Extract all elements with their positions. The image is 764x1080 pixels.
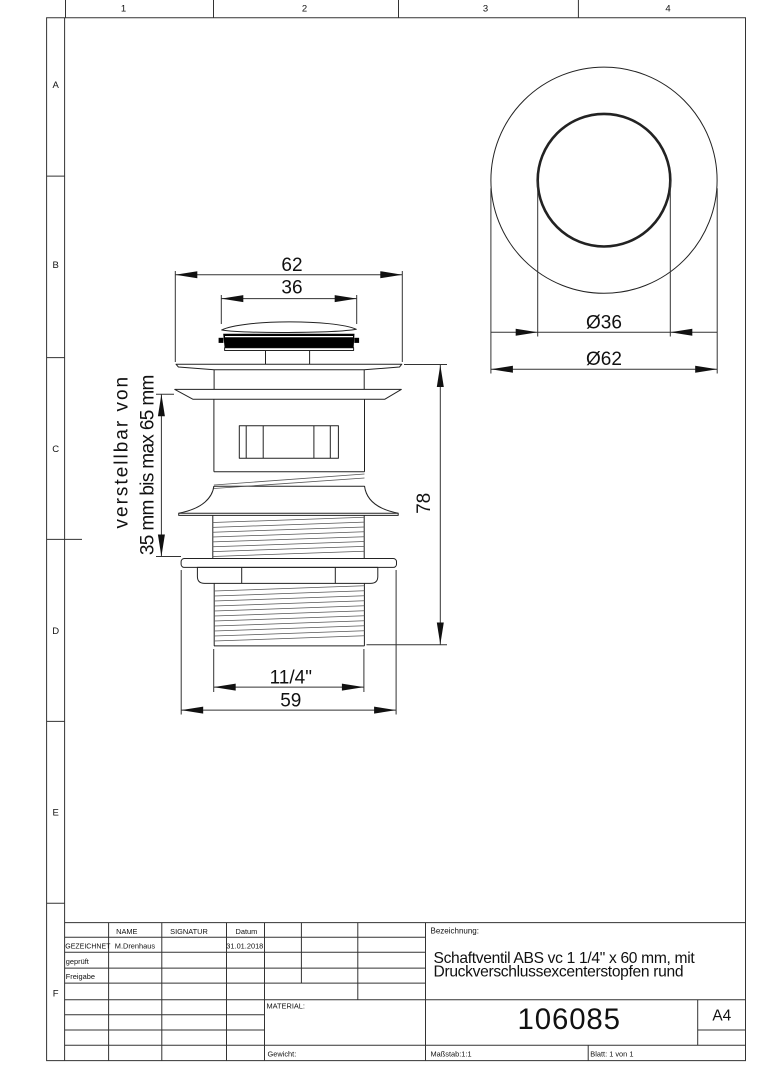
- svg-text:Ø36: Ø36: [586, 313, 622, 334]
- svg-text:2: 2: [302, 4, 307, 15]
- svg-text:78: 78: [414, 493, 435, 514]
- svg-text:D: D: [52, 626, 59, 637]
- svg-text:36: 36: [281, 278, 302, 299]
- svg-text:B: B: [53, 260, 59, 271]
- svg-text:106085: 106085: [517, 1003, 620, 1036]
- svg-text:geprüft: geprüft: [66, 957, 89, 966]
- svg-text:Maßstab:1:1: Maßstab:1:1: [431, 1049, 472, 1058]
- svg-text:Druckverschlussexcenterstopfen: Druckverschlussexcenterstopfen rund: [434, 964, 684, 981]
- svg-text:59: 59: [280, 690, 301, 711]
- svg-text:Ø62: Ø62: [586, 349, 622, 370]
- svg-text:F: F: [53, 989, 59, 1000]
- svg-text:3: 3: [483, 4, 488, 15]
- svg-text:35 mm bis max 65 mm: 35 mm bis max 65 mm: [138, 375, 159, 555]
- svg-text:verstellbar von: verstellbar von: [112, 375, 133, 529]
- svg-text:M.Drenhaus: M.Drenhaus: [115, 942, 156, 951]
- svg-text:SIGNATUR: SIGNATUR: [170, 927, 208, 936]
- svg-text:Freigabe: Freigabe: [66, 972, 95, 981]
- svg-text:31.01.2018: 31.01.2018: [226, 942, 263, 951]
- svg-text:11/4": 11/4": [270, 667, 312, 688]
- svg-text:Datum: Datum: [236, 927, 258, 936]
- svg-text:MATERIAL:: MATERIAL:: [267, 1002, 305, 1011]
- svg-text:C: C: [52, 444, 59, 455]
- svg-text:A4: A4: [712, 1008, 731, 1025]
- svg-text:Bezeichnung:: Bezeichnung:: [431, 927, 479, 936]
- svg-text:Blatt: 1 von 1: Blatt: 1 von 1: [590, 1049, 633, 1058]
- svg-text:E: E: [53, 808, 59, 819]
- svg-text:62: 62: [281, 255, 302, 276]
- svg-text:4: 4: [665, 4, 670, 15]
- svg-text:Gewicht:: Gewicht:: [268, 1049, 297, 1058]
- svg-text:1: 1: [121, 4, 126, 15]
- svg-text:A: A: [53, 80, 60, 91]
- svg-text:GEZEICHNET: GEZEICHNET: [65, 944, 111, 951]
- svg-text:NAME: NAME: [116, 927, 137, 936]
